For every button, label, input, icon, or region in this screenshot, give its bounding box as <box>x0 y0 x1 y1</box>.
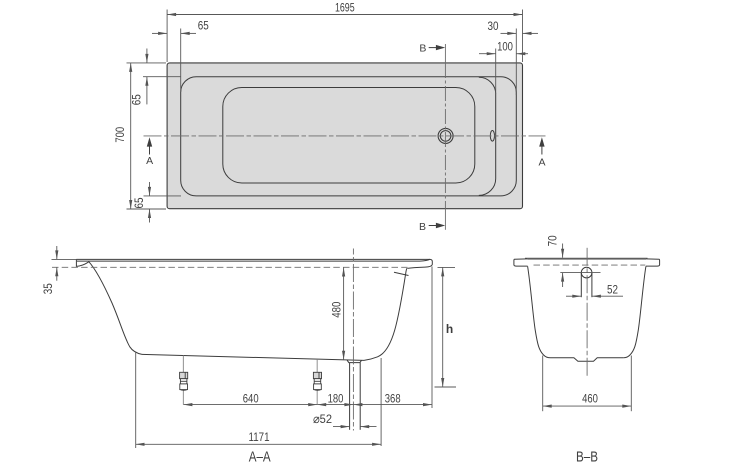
svg-text:65: 65 <box>130 94 144 105</box>
svg-text:⌀52: ⌀52 <box>313 412 332 426</box>
svg-text:180: 180 <box>328 391 344 405</box>
svg-text:480: 480 <box>330 302 344 318</box>
svg-text:B: B <box>419 221 426 233</box>
svg-text:1695: 1695 <box>335 1 355 15</box>
svg-text:h: h <box>446 322 453 336</box>
svg-text:A: A <box>146 155 153 167</box>
svg-text:640: 640 <box>243 391 259 405</box>
svg-text:100: 100 <box>497 39 513 53</box>
svg-text:700: 700 <box>113 127 127 143</box>
svg-text:A: A <box>538 157 545 169</box>
svg-text:35: 35 <box>41 283 55 294</box>
svg-text:B–B: B–B <box>576 449 598 466</box>
svg-text:1171: 1171 <box>249 430 270 444</box>
svg-text:A–A: A–A <box>249 449 271 466</box>
svg-text:30: 30 <box>488 19 499 33</box>
svg-text:65: 65 <box>132 197 146 208</box>
svg-text:368: 368 <box>385 391 401 405</box>
svg-text:B: B <box>419 42 426 54</box>
svg-text:70: 70 <box>545 235 559 246</box>
svg-text:52: 52 <box>607 283 618 297</box>
svg-text:460: 460 <box>582 391 598 405</box>
svg-text:65: 65 <box>198 19 209 33</box>
